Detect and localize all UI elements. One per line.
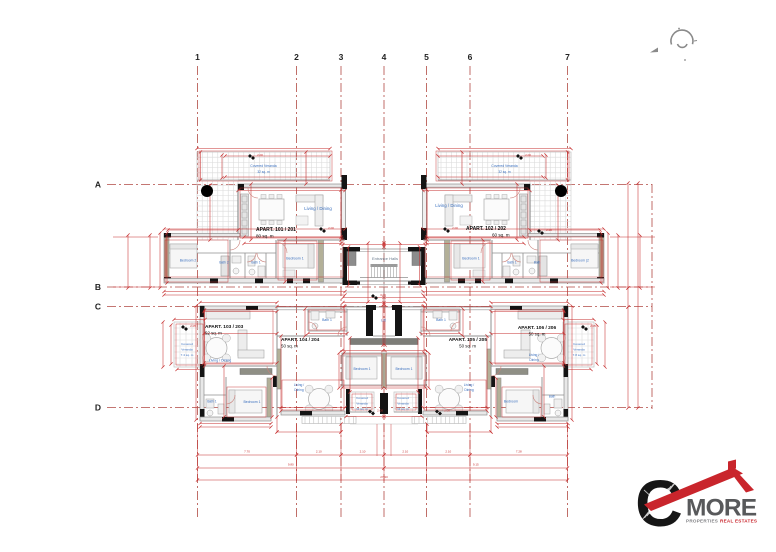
svg-text:7.70: 7.70	[244, 450, 250, 454]
svg-text:2.05: 2.05	[590, 324, 596, 328]
svg-text:A: A	[95, 180, 101, 190]
svg-text:2.00: 2.00	[257, 153, 263, 157]
svg-text:Bath 1: Bath 1	[507, 261, 516, 265]
svg-text:2.00: 2.00	[546, 228, 552, 232]
svg-text:APART. 103 / 203: APART. 103 / 203	[205, 324, 244, 330]
svg-text:APART. 102 / 202: APART. 102 / 202	[466, 226, 506, 232]
svg-text:Dining: Dining	[464, 388, 474, 392]
svg-text:32 sq. m: 32 sq. m	[498, 170, 511, 174]
svg-text:50 sq. m: 50 sq. m	[459, 344, 476, 349]
svg-text:2.00: 2.00	[377, 409, 383, 413]
svg-text:Lift: Lift	[381, 319, 386, 323]
svg-text:APART. 101 / 201: APART. 101 / 201	[256, 227, 296, 233]
svg-text:32 sq. m: 32 sq. m	[257, 170, 270, 174]
svg-text:APART. 106 / 206: APART. 106 / 206	[518, 325, 557, 331]
svg-text:B: B	[95, 282, 101, 292]
svg-text:Bedroom: Bedroom	[504, 400, 518, 404]
svg-text:REAL ESTATES: REAL ESTATES	[720, 519, 757, 524]
svg-text:Covered: Covered	[356, 396, 368, 400]
svg-text:2: 2	[294, 52, 299, 62]
svg-text:2.10: 2.10	[360, 450, 366, 454]
svg-text:Bedroom 1: Bedroom 1	[353, 367, 370, 371]
svg-text:Bath 1: Bath 1	[251, 261, 260, 265]
svg-text:Covered: Covered	[573, 342, 585, 346]
svg-text:Veranda: Veranda	[397, 402, 409, 406]
svg-text:2.10: 2.10	[445, 450, 451, 454]
svg-text:Living /: Living /	[529, 353, 540, 357]
svg-text:Dining: Dining	[529, 358, 539, 362]
svg-text:2.00: 2.00	[452, 226, 458, 230]
svg-text:6: 6	[468, 52, 473, 62]
svg-text:3: 3	[339, 52, 344, 62]
svg-text:4: 4	[382, 52, 387, 62]
svg-text:50 sq. m: 50 sq. m	[281, 344, 298, 349]
svg-text:2.05: 2.05	[190, 324, 196, 328]
svg-text:Living / Dining: Living / Dining	[435, 203, 463, 208]
svg-text:Covered Veranda: Covered Veranda	[491, 164, 518, 168]
svg-text:92 sq. m: 92 sq. m	[205, 331, 222, 336]
svg-text:7.28: 7.28	[516, 450, 522, 454]
svg-text:Covered: Covered	[397, 396, 409, 400]
svg-text:2.10: 2.10	[402, 450, 408, 454]
svg-text:Bedroom 1: Bedroom 1	[395, 367, 412, 371]
svg-text:D: D	[95, 403, 101, 413]
svg-text:Living /: Living /	[464, 383, 475, 387]
svg-text:Veranda: Veranda	[573, 348, 585, 352]
svg-text:Entrance Halls: Entrance Halls	[372, 256, 398, 261]
svg-text:2.00: 2.00	[525, 153, 531, 157]
svg-text:2.00: 2.00	[328, 226, 334, 230]
svg-text:9.15: 9.15	[473, 463, 479, 467]
svg-text:7.4 sq. m: 7.4 sq. m	[181, 353, 194, 357]
svg-text:9.80: 9.80	[288, 463, 294, 467]
svg-text:Bath 1: Bath 1	[436, 318, 446, 322]
svg-text:Bedroom 1: Bedroom 1	[243, 400, 260, 404]
svg-text:Bedroom 1: Bedroom 1	[462, 257, 480, 261]
svg-text:11 sq. m: 11 sq. m	[356, 407, 368, 411]
svg-text:Bedroom (2: Bedroom (2	[571, 259, 589, 263]
svg-text:MORE: MORE	[686, 495, 757, 522]
svg-text:7: 7	[565, 52, 570, 62]
svg-text:5: 5	[424, 52, 429, 62]
svg-text:Living / Dining: Living / Dining	[209, 359, 232, 363]
svg-text:3.00: 3.00	[380, 293, 386, 297]
svg-text:Covered: Covered	[181, 342, 193, 346]
svg-text:Living /: Living /	[294, 383, 305, 387]
svg-text:Bedroom 2: Bedroom 2	[180, 259, 197, 263]
svg-text:PROPERTIES: PROPERTIES	[686, 519, 718, 524]
svg-text:80 sq. m: 80 sq. m	[256, 234, 274, 239]
svg-text:60 sq. m: 60 sq. m	[492, 233, 510, 238]
svg-text:Covered Veranda: Covered Veranda	[250, 164, 277, 168]
svg-text:7.8 sq. m: 7.8 sq. m	[573, 353, 586, 357]
svg-text:Veranda: Veranda	[356, 402, 368, 406]
svg-text:Bath: Bath	[534, 261, 541, 265]
svg-text:1: 1	[195, 52, 200, 62]
svg-text:Bath: Bath	[549, 395, 556, 399]
svg-text:Veranda: Veranda	[181, 348, 193, 352]
svg-text:APART. 104 / 204: APART. 104 / 204	[281, 337, 320, 343]
svg-text:Dining: Dining	[294, 388, 304, 392]
svg-text:Bath 1: Bath 1	[207, 400, 216, 404]
svg-text:2.00: 2.00	[444, 409, 450, 413]
svg-text:APART. 105 / 205: APART. 105 / 205	[449, 337, 488, 343]
svg-text:Bath 2: Bath 2	[219, 261, 228, 265]
svg-text:50 sq. m: 50 sq. m	[529, 332, 546, 337]
svg-text:11 sq. m: 11 sq. m	[397, 407, 409, 411]
svg-text:Bedroom 1: Bedroom 1	[286, 257, 304, 261]
svg-text:2.10: 2.10	[316, 450, 322, 454]
svg-text:Bath 1: Bath 1	[322, 318, 332, 322]
svg-text:C: C	[95, 302, 101, 312]
svg-text:Living / Dining: Living / Dining	[304, 206, 332, 211]
